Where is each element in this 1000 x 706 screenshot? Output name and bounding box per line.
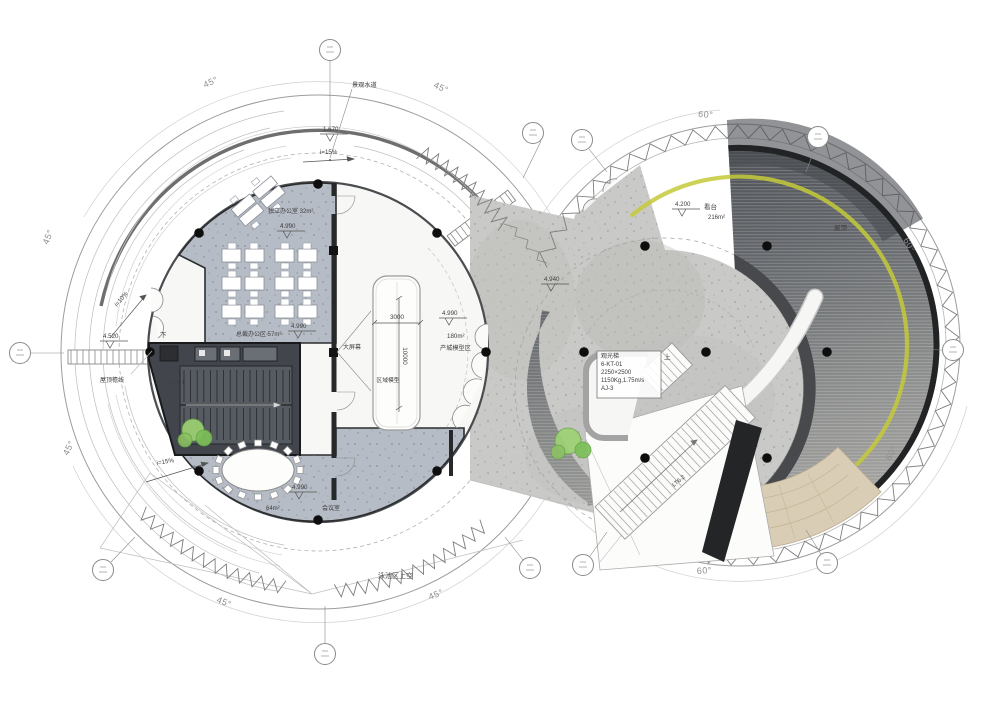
axis-bubble	[817, 553, 838, 574]
desk	[245, 277, 264, 290]
angle-60: 60°	[696, 565, 712, 576]
desk	[275, 277, 294, 290]
chair	[250, 299, 258, 305]
elevation-value: 4.990	[280, 223, 296, 230]
big-screen-label: 大屏幕	[343, 343, 361, 351]
column-dot	[822, 347, 832, 357]
desk	[275, 249, 294, 262]
column-dot	[145, 347, 155, 357]
axis-bubble	[808, 127, 829, 148]
column-dot	[432, 228, 442, 238]
chair	[303, 291, 311, 297]
chair	[250, 271, 258, 277]
chair	[228, 319, 236, 325]
axis-bubble	[93, 560, 114, 581]
chair	[255, 440, 262, 446]
angle-45: 45°	[61, 439, 77, 457]
chair	[281, 263, 289, 269]
desk	[245, 305, 264, 318]
elevator-code: 6-KT-01	[601, 362, 623, 368]
chair	[213, 467, 219, 474]
chair	[250, 291, 258, 297]
elevator-type: AJ-3	[601, 386, 614, 392]
angle-45: 45°	[427, 587, 445, 602]
chair	[250, 243, 258, 249]
elevation-value: 4.940	[544, 276, 560, 283]
chair	[303, 299, 311, 305]
column-dot	[762, 241, 772, 251]
private-office-label: 独立办公室 32m²	[268, 207, 313, 215]
chair	[228, 271, 236, 277]
angle-45: 45°	[41, 228, 56, 246]
column-dot	[194, 228, 204, 238]
elevator-name: 观光梯	[601, 352, 619, 360]
column-dot	[313, 515, 323, 525]
region-model-label: 区域模型	[376, 376, 399, 384]
axis-bubble	[10, 343, 31, 364]
slope-15-bl: i=15%	[156, 457, 175, 467]
column-dot	[194, 466, 204, 476]
exec-office-label: 总裁办公区 57m²	[236, 330, 281, 338]
elevator-size: 2250×2500	[601, 370, 632, 376]
floor-plan-sheet: 泳池区上空 LT6-1	[0, 0, 1000, 706]
dim-10000: 10000	[401, 347, 408, 365]
elevation-value: 1.670	[323, 126, 339, 133]
axis-bubble	[320, 40, 341, 61]
meeting-label: 会议室	[322, 504, 340, 512]
column-dot	[579, 347, 589, 357]
desk	[245, 249, 264, 262]
angle-45: 45°	[215, 595, 233, 610]
column-dot	[640, 241, 650, 251]
desk	[222, 277, 241, 290]
axis-bubble	[572, 130, 593, 151]
chair	[255, 494, 262, 500]
desk	[298, 305, 317, 318]
up-label: 上	[664, 352, 671, 361]
axis-bubble	[943, 340, 964, 361]
chair	[228, 299, 236, 305]
column-dot	[640, 453, 650, 463]
sawtooth-arc	[417, 148, 508, 231]
desk	[222, 249, 241, 262]
floor-plan-drawing: 泳池区上空 LT6-1	[0, 0, 1000, 706]
angle-45: 45°	[432, 80, 450, 95]
stair-lt61-label: LT6-1	[170, 380, 185, 386]
chair	[281, 243, 289, 249]
meeting-size-label: 64m²	[266, 506, 280, 512]
chair	[250, 263, 258, 269]
roof-label: 屋顶	[834, 224, 848, 232]
pool-void-label: 泳池区上空	[378, 571, 413, 580]
conference-table	[222, 449, 294, 491]
chair	[297, 467, 303, 474]
axis-bubble	[520, 558, 541, 579]
chair	[228, 291, 236, 297]
waterway-label: 景观水道	[352, 81, 377, 89]
stand-label: 看台	[704, 202, 717, 211]
sawtooth-arc	[334, 520, 484, 597]
model-area-size: 180m²	[447, 333, 465, 340]
axis-bubble	[315, 644, 336, 665]
elevation-marker: 4.520	[100, 333, 128, 348]
desk	[275, 305, 294, 318]
chair	[250, 319, 258, 325]
slope-15-top: i=15%	[320, 149, 338, 156]
elevation-value: 4.990	[442, 310, 458, 317]
axis-bubble	[573, 555, 594, 576]
elevation-value: 4.520	[103, 333, 119, 340]
column-dot	[481, 347, 491, 357]
region-model-table: 3000 10000 区域模型	[372, 276, 423, 430]
column-dot	[762, 453, 772, 463]
dim-3000: 3000	[390, 314, 405, 321]
column-dot	[313, 179, 323, 189]
desk	[222, 305, 241, 318]
chair	[281, 299, 289, 305]
angle-60: 60°	[698, 109, 714, 120]
chair	[303, 243, 311, 249]
chair	[281, 319, 289, 325]
down-label: 下	[160, 331, 167, 339]
elevator-capacity: 1150Kg,1.75m/s	[601, 378, 644, 384]
stand-size-label: 216m²	[708, 215, 725, 221]
elevation-value: 4.990	[291, 323, 307, 330]
chair	[303, 271, 311, 277]
elevation-value: 4.990	[292, 484, 308, 491]
column-dot	[701, 347, 711, 357]
elevation-marker: 4.200	[672, 201, 700, 216]
axis-bubble	[523, 123, 544, 144]
eave-label: 屋顶檐线	[100, 376, 124, 384]
model-area-label: 产城模型区	[440, 344, 471, 352]
chair	[281, 291, 289, 297]
chair	[281, 271, 289, 277]
chair	[228, 243, 236, 249]
desk	[298, 249, 317, 262]
chair	[303, 263, 311, 269]
column-dot	[432, 466, 442, 476]
desk	[298, 277, 317, 290]
angle-45: 45°	[202, 74, 220, 89]
chair	[228, 263, 236, 269]
elevation-value: 4.200	[675, 201, 691, 208]
